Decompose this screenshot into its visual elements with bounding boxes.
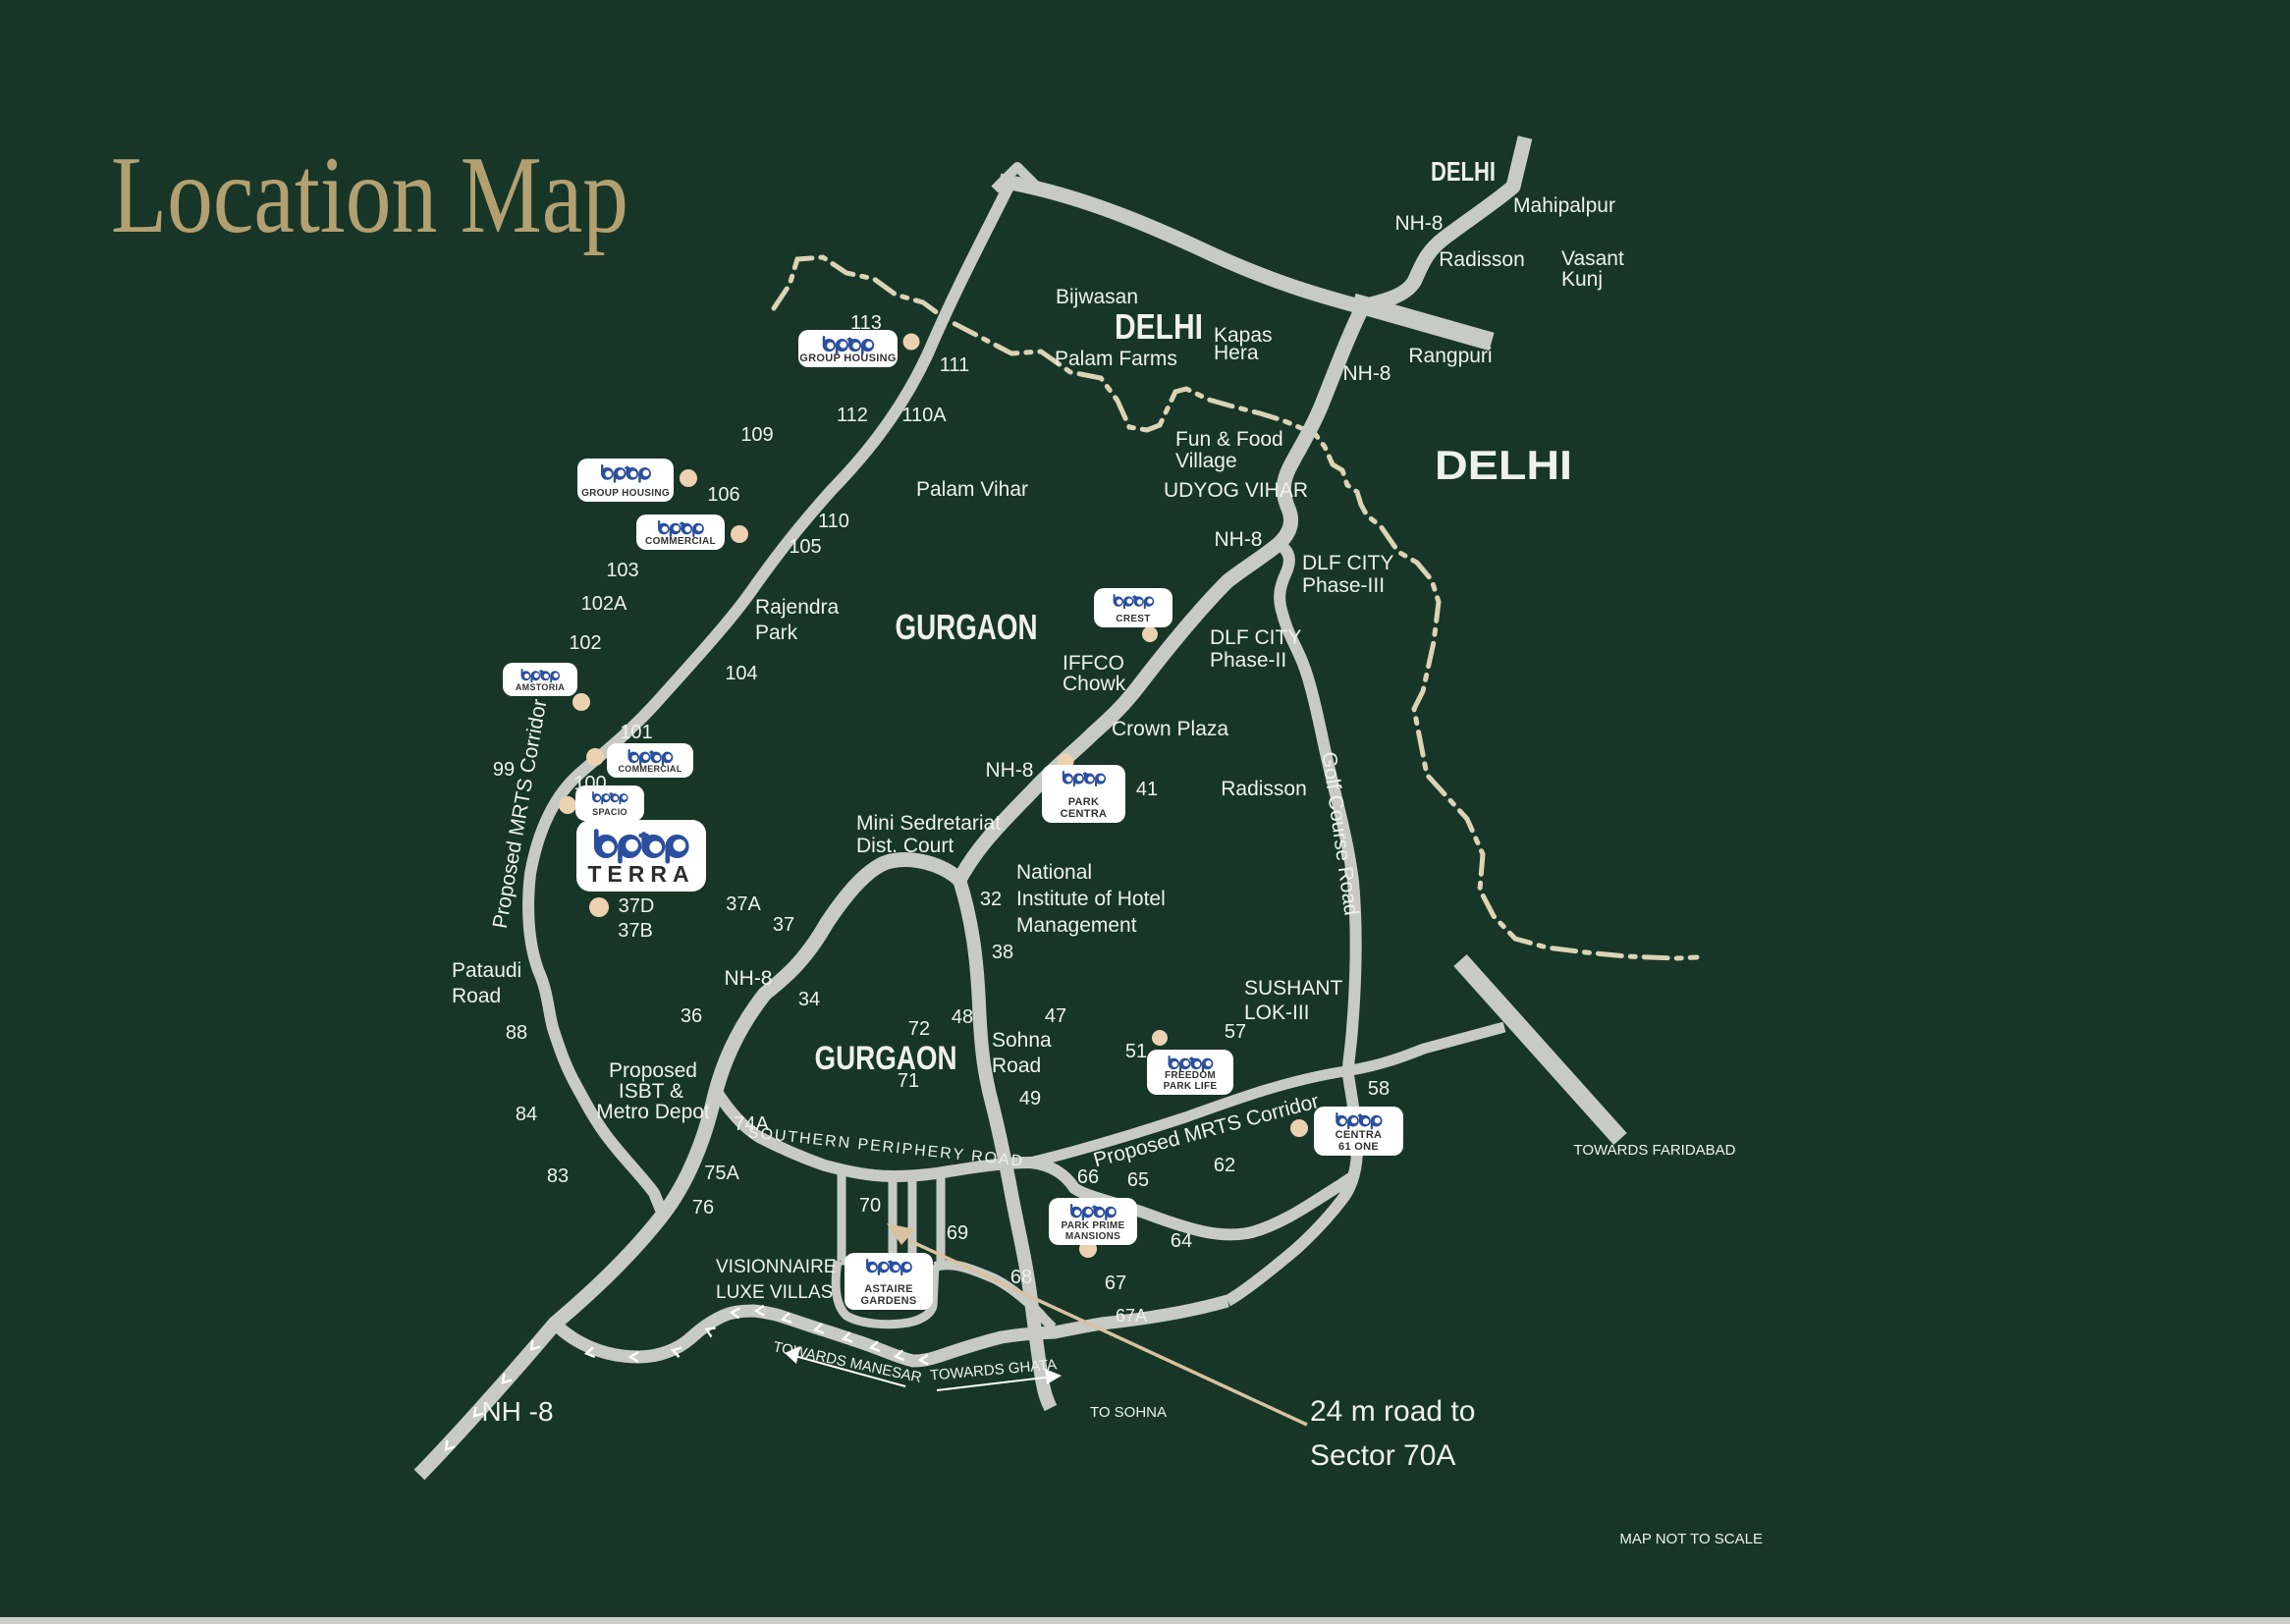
svg-text:65: 65 [1127,1169,1149,1191]
svg-text:ASTAIRE: ASTAIRE [864,1283,913,1295]
svg-text:62: 62 [1214,1155,1235,1176]
svg-text:111: 111 [940,354,969,376]
svg-text:GARDENS: GARDENS [860,1295,916,1307]
svg-text:66: 66 [1077,1166,1099,1188]
svg-text:Metro Depot: Metro Depot [596,1101,710,1123]
svg-text:41: 41 [1136,779,1158,800]
svg-text:61 ONE: 61 ONE [1338,1141,1379,1153]
svg-text:DLF CITY: DLF CITY [1210,626,1301,649]
svg-text:PARK LIFE: PARK LIFE [1164,1081,1218,1092]
svg-text:Palam Vihar: Palam Vihar [916,478,1028,501]
svg-text:99: 99 [493,759,515,781]
svg-text:67A: 67A [1116,1306,1147,1326]
svg-text:112: 112 [837,405,868,426]
svg-text:48: 48 [952,1006,973,1028]
svg-text:Institute of Hotel: Institute of Hotel [1016,888,1166,910]
svg-text:LOK-III: LOK-III [1244,1001,1310,1024]
svg-text:Sector 70A: Sector 70A [1310,1439,1455,1472]
svg-text:TO SOHNA: TO SOHNA [1090,1404,1167,1421]
svg-text:Management: Management [1016,914,1137,937]
svg-text:37: 37 [773,914,794,936]
svg-text:CREST: CREST [1116,614,1150,624]
svg-text:Crown Plaza: Crown Plaza [1112,718,1228,740]
svg-text:Proposed: Proposed [609,1059,697,1082]
svg-text:DLF CITY: DLF CITY [1302,552,1393,574]
svg-text:Bijwasan: Bijwasan [1056,286,1138,308]
svg-text:GURGAON: GURGAON [896,607,1038,647]
svg-text:IFFCO: IFFCO [1063,652,1124,675]
svg-text:CENTRA: CENTRA [1061,808,1108,820]
svg-text:38: 38 [992,942,1013,963]
svg-text:Dist. Court: Dist. Court [856,835,954,857]
svg-text:34: 34 [798,989,820,1010]
svg-text:Road: Road [992,1055,1041,1077]
svg-text:51: 51 [1125,1041,1147,1062]
svg-text:Palam Farms: Palam Farms [1055,348,1177,370]
svg-text:109: 109 [740,424,773,446]
svg-text:57: 57 [1225,1021,1246,1043]
svg-text:32: 32 [980,889,1002,910]
svg-text:MAP NOT TO SCALE: MAP NOT TO SCALE [1619,1531,1763,1547]
svg-text:72: 72 [908,1018,930,1040]
svg-text:Fun & Food: Fun & Food [1175,428,1283,451]
svg-text:67: 67 [1105,1272,1126,1294]
svg-text:49: 49 [1019,1088,1041,1110]
svg-text:76: 76 [692,1197,714,1218]
svg-text:TERRA: TERRA [587,861,694,887]
svg-text:NH-8: NH-8 [1394,212,1443,235]
svg-text:DELHI: DELHI [1435,442,1572,488]
svg-text:106: 106 [707,484,739,506]
svg-text:64: 64 [1171,1230,1192,1252]
svg-text:102A: 102A [581,593,627,615]
svg-text:37A: 37A [726,893,761,915]
svg-text:47: 47 [1045,1005,1066,1027]
svg-text:70: 70 [859,1195,881,1217]
svg-text:Radisson: Radisson [1439,248,1525,271]
svg-text:110: 110 [818,511,849,532]
svg-text:PARK: PARK [1068,796,1100,808]
svg-text:Village: Village [1175,450,1237,472]
svg-text:CENTRA: CENTRA [1336,1129,1383,1141]
svg-text:Chowk: Chowk [1063,673,1126,695]
svg-text:Phase-III: Phase-III [1302,574,1385,597]
svg-text:Road: Road [452,985,501,1007]
svg-text:Rajendra: Rajendra [755,596,840,619]
svg-text:104: 104 [725,663,757,684]
svg-text:GROUP HOUSING: GROUP HOUSING [581,488,670,499]
svg-text:Rangpuri: Rangpuri [1408,345,1492,367]
svg-text:Sohna: Sohna [992,1029,1052,1052]
svg-text:COMMERCIAL: COMMERCIAL [619,764,682,774]
svg-text:DELHI: DELHI [1431,156,1496,187]
svg-text:COMMERCIAL: COMMERCIAL [645,536,716,547]
svg-text:UDYOG VIHAR: UDYOG VIHAR [1164,479,1308,502]
svg-text:SUSHANT: SUSHANT [1244,977,1343,1000]
svg-text:Hera: Hera [1214,342,1259,364]
svg-text:Mini Sedretariat: Mini Sedretariat [856,812,1001,835]
svg-text:Kunj: Kunj [1561,268,1603,291]
svg-text:69: 69 [947,1222,968,1244]
svg-text:Phase-II: Phase-II [1210,649,1286,672]
svg-text:GROUP HOUSING: GROUP HOUSING [799,352,896,364]
svg-text:VISIONNAIRE: VISIONNAIRE [716,1257,836,1277]
svg-text:36: 36 [681,1005,702,1027]
svg-text:TOWARDS FARIDABAD: TOWARDS FARIDABAD [1573,1142,1735,1159]
svg-text:83: 83 [547,1165,569,1187]
svg-text:113: 113 [850,312,882,334]
svg-text:NH-8: NH-8 [1342,362,1390,385]
svg-text:FREEDOM: FREEDOM [1165,1070,1216,1081]
svg-text:71: 71 [898,1070,919,1092]
svg-text:National: National [1016,861,1092,884]
svg-text:84: 84 [516,1104,537,1125]
svg-text:103: 103 [606,560,638,581]
svg-text:Location Map: Location Map [111,135,628,256]
svg-text:LUXE VILLAS: LUXE VILLAS [716,1282,833,1303]
svg-text:58: 58 [1368,1078,1390,1100]
svg-text:ISBT &: ISBT & [619,1080,683,1103]
svg-text:100: 100 [573,773,606,794]
svg-text:NH-8: NH-8 [1214,528,1262,551]
svg-text:24 m road to: 24 m road to [1310,1395,1475,1428]
svg-text:88: 88 [506,1022,527,1044]
svg-text:SPACIO: SPACIO [592,807,627,817]
svg-text:68: 68 [1010,1267,1032,1288]
svg-text:NH -8: NH -8 [481,1396,553,1427]
svg-text:37B: 37B [618,920,653,942]
svg-text:Park: Park [755,622,798,644]
svg-text:110A: 110A [901,405,947,426]
svg-text:Mahipalpur: Mahipalpur [1513,194,1615,217]
svg-text:AMSTORIA: AMSTORIA [516,682,565,692]
svg-text:101: 101 [620,722,652,743]
svg-text:PARK PRIME: PARK PRIME [1061,1220,1124,1231]
svg-text:105: 105 [789,536,821,558]
svg-text:Radisson: Radisson [1221,778,1307,800]
svg-text:Vasant: Vasant [1561,247,1624,270]
svg-text:NH-8: NH-8 [985,759,1033,782]
svg-text:75A: 75A [704,1163,739,1184]
svg-text:NH-8: NH-8 [724,967,772,990]
svg-text:Pataudi: Pataudi [452,959,521,982]
svg-text:37D: 37D [619,895,655,917]
svg-text:GURGAON: GURGAON [815,1040,957,1077]
svg-text:MANSIONS: MANSIONS [1065,1231,1120,1242]
svg-text:DELHI: DELHI [1115,306,1203,347]
svg-text:102: 102 [569,632,601,654]
